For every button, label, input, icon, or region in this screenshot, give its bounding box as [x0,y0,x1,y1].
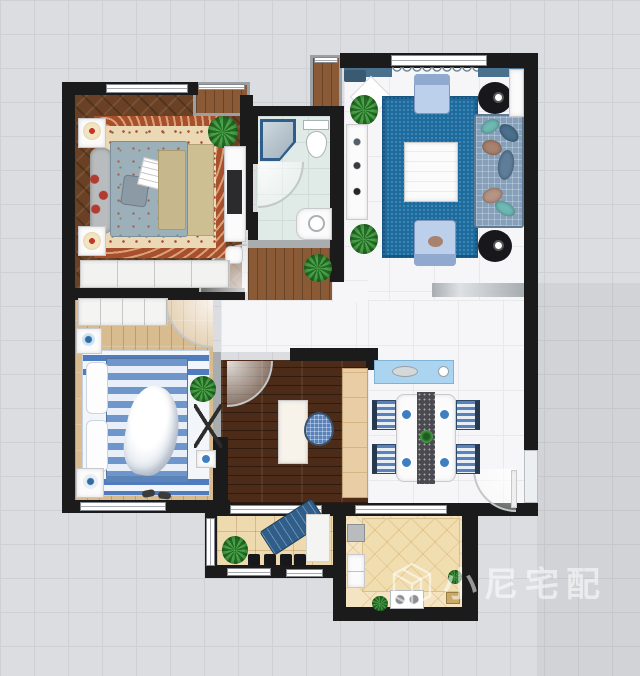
master-lamp-top [83,122,101,140]
wall-bedroom2-right-lower [213,437,228,513]
master-tv [227,170,242,214]
dinner-plate-3 [400,456,413,469]
balcony-stool-4[interactable] [294,554,306,566]
balcony-mat [306,514,330,562]
entry-door-leaf[interactable] [511,470,517,508]
master-bedroom-window [106,84,188,93]
dinner-plate-1 [400,408,413,421]
wall-kitchen-bottom [333,607,478,621]
wall-right-exterior [524,53,538,450]
study-bookcase[interactable] [342,368,368,498]
living-dining-mat [432,283,524,297]
armchair-south-back [414,254,456,266]
floorplan-canvas: 小尼宅配 [0,0,640,676]
kitchen-plant-small [372,596,388,611]
master-bed-folded-blanket [158,150,186,230]
balcony-stool-3[interactable] [280,554,292,566]
slipper-2 [158,491,172,499]
hallway-strip-floor [332,280,368,302]
living-room-window [391,55,487,66]
alcove-right-window [314,57,338,63]
master-wardrobe[interactable] [80,260,230,288]
wall-kitchen-left [333,503,346,621]
balcony-stool-2[interactable] [264,554,276,566]
bedroom2-window [80,502,166,511]
kitchen-counter[interactable] [362,518,460,592]
entry-threshold [524,450,538,503]
hallway-plant[interactable] [304,254,332,282]
toilet-tank [303,120,329,130]
living-plant-bottom[interactable] [350,224,378,254]
balcony-plant[interactable] [222,536,248,564]
coffee-table[interactable] [404,142,458,202]
kitchen-stove[interactable] [390,590,424,609]
background-shade [537,283,640,676]
entry-bench[interactable] [344,70,366,82]
bedroom2-vase-top [82,333,95,346]
dinner-plate-4 [438,456,451,469]
bedroom2-basin [201,454,211,464]
dinner-plate-2 [438,408,451,421]
dining-chair-bottom-left[interactable] [372,444,396,474]
kitchen-appliance[interactable] [347,524,365,542]
bedroom2-wardrobe[interactable] [78,298,168,326]
bedroom2-pillow-bottom [86,420,108,472]
bedroom2-lamp-bottom [83,474,98,489]
kitchen-basket [446,592,460,604]
master-plant[interactable] [208,116,238,148]
dining-chair-bottom-right[interactable] [456,444,480,474]
bedroom2-footboard [106,476,188,482]
bedroom2-pillow-top [86,362,108,414]
balcony-rail-window-2 [286,569,323,577]
corner-cabinet[interactable] [509,69,524,117]
wall-study-top [290,348,378,361]
armchair-south-pillow [428,236,443,247]
wall-balcony-bottom [205,565,345,578]
bathroom-sink [308,215,325,232]
wall-bathroom-left-upper [248,106,258,164]
wall-kitchen-right [462,503,478,621]
sideboard-bowl [438,366,449,377]
sideboard-platter [392,366,418,377]
wall-bathroom-bottom [248,240,340,248]
hallway-floor [221,300,368,352]
side-table-north-cup [493,92,504,103]
wall-bathroom-living [330,106,344,282]
dining-chair-top-left[interactable] [372,400,396,430]
bedroom2-plant[interactable] [190,376,216,402]
wall-bathroom-top [248,106,340,116]
table-centerpiece-plant [420,430,433,443]
balcony-side-window [206,518,215,566]
alcove-left-window [198,84,245,90]
master-lamp-bottom [83,232,101,250]
study-office-chair[interactable] [304,412,334,446]
kitchen-sliding-door[interactable] [355,505,447,514]
armchair-north-back [414,74,450,85]
master-bed-floral-accent [88,170,110,216]
refrigerator[interactable] [347,554,365,588]
drying-rack[interactable] [194,404,222,448]
balcony-stool-1[interactable] [248,554,260,566]
balcony-rail-window-1 [227,568,271,576]
tv-accessories [352,136,362,210]
living-plant-top[interactable] [350,95,378,125]
side-table-south-cup [493,240,504,251]
alcove-north-right-floor [310,55,342,113]
kitchen-plant-right [448,570,462,584]
dining-chair-top-right[interactable] [456,400,480,430]
